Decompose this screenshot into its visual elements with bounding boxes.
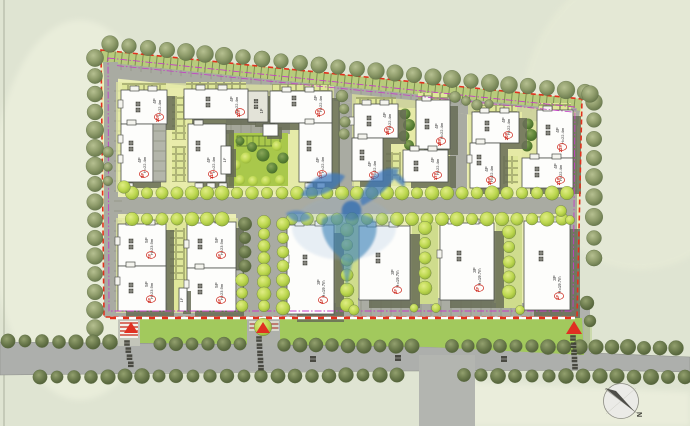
svg-text:H=23.9m: H=23.9m — [149, 238, 154, 255]
svg-text:H=22.4m: H=22.4m — [318, 95, 323, 112]
svg-text:H=23.9m: H=23.9m — [219, 283, 224, 300]
svg-text:19#: 19# — [487, 177, 492, 185]
svg-text:11#: 11# — [209, 172, 214, 180]
svg-text:5#: 5# — [217, 254, 222, 259]
svg-text:H=19.7m: H=19.7m — [477, 268, 482, 286]
svg-text:4#: 4# — [319, 299, 324, 304]
svg-text:N: N — [635, 412, 642, 417]
svg-text:20#: 20# — [504, 132, 509, 140]
svg-text:H=19.7m: H=19.7m — [557, 276, 562, 294]
svg-text:1F: 1F — [259, 108, 264, 113]
svg-text:17#: 17# — [433, 172, 438, 180]
svg-text:16#: 16# — [385, 127, 390, 135]
svg-text:3#: 3# — [393, 289, 398, 294]
svg-text:H=23.9m: H=23.9m — [149, 282, 154, 299]
svg-text:2#: 2# — [475, 287, 480, 292]
svg-text:H=22.4m: H=22.4m — [560, 127, 565, 144]
svg-text:12#: 12# — [236, 109, 241, 117]
svg-text:10#: 10# — [155, 114, 160, 122]
svg-text:H=22.4m: H=22.4m — [435, 158, 440, 175]
svg-text:H=22.4m: H=22.4m — [387, 113, 392, 130]
svg-text:18#: 18# — [437, 138, 442, 146]
svg-text:1F: 1F — [222, 157, 227, 162]
svg-text:7#: 7# — [147, 254, 152, 259]
svg-text:8#: 8# — [147, 298, 152, 303]
svg-text:6#: 6# — [217, 299, 222, 304]
svg-text:1F: 1F — [179, 297, 184, 302]
svg-text:14#: 14# — [316, 109, 321, 117]
svg-text:H=19.7m: H=19.7m — [395, 270, 400, 288]
svg-text:9#: 9# — [140, 173, 145, 178]
svg-text:1#: 1# — [555, 295, 560, 300]
svg-text:H=22.4m: H=22.4m — [439, 122, 444, 139]
svg-text:21#: 21# — [556, 177, 561, 185]
svg-text:H=23.9m: H=23.9m — [219, 238, 224, 255]
svg-text:H=19.7m: H=19.7m — [321, 280, 326, 298]
svg-text:22#: 22# — [558, 144, 563, 152]
svg-text:H=22.4m: H=22.4m — [506, 118, 511, 135]
